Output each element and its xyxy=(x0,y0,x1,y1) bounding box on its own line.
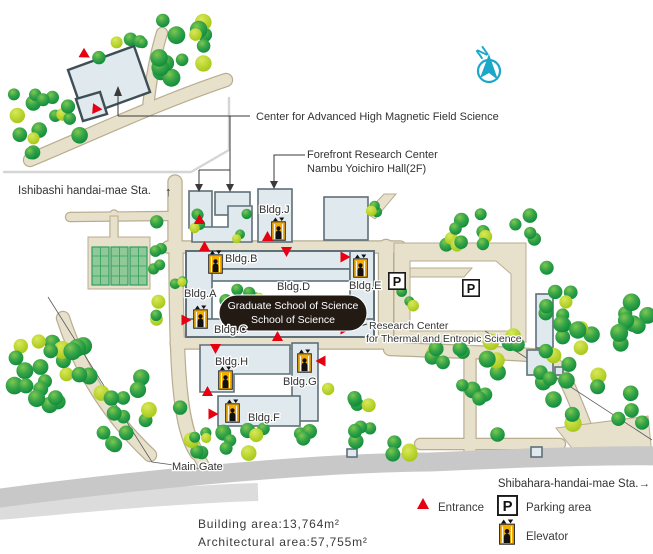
research-center-label-line1: Research Center xyxy=(369,320,449,332)
tree xyxy=(543,372,557,386)
tree xyxy=(610,324,628,342)
area-stats: Building area:13,764m² Architectural are… xyxy=(198,517,368,549)
tree xyxy=(479,351,496,368)
tree xyxy=(154,259,165,270)
tree xyxy=(545,391,562,408)
school-badge-line2: School of Science xyxy=(251,314,335,326)
architectural-area-stat: Architectural area:57,755m² xyxy=(198,535,368,549)
tree xyxy=(475,208,487,220)
tree xyxy=(92,51,105,64)
tree xyxy=(558,372,574,388)
tree xyxy=(553,316,569,332)
tree xyxy=(348,424,362,438)
tree xyxy=(72,367,88,383)
tree xyxy=(173,400,187,414)
tree xyxy=(189,28,202,41)
tree xyxy=(623,386,639,402)
tree xyxy=(27,132,39,144)
tree xyxy=(107,437,122,452)
tree xyxy=(454,235,468,249)
tree xyxy=(104,390,119,405)
legend: Entrance Parking area Elevator xyxy=(417,496,592,544)
tree xyxy=(28,390,45,407)
tree xyxy=(177,277,186,286)
tree xyxy=(201,433,211,443)
tree xyxy=(540,261,554,275)
tree xyxy=(197,39,211,53)
building-north-5 xyxy=(324,197,368,240)
shibahara-station-label: Shibahara-handai-mae Sta.→ xyxy=(498,478,650,490)
tree xyxy=(9,351,24,366)
tree xyxy=(111,36,123,48)
entrance-icon xyxy=(78,48,92,63)
tree xyxy=(490,427,505,442)
campus-map: P xyxy=(0,0,653,554)
tree xyxy=(130,382,146,398)
tree xyxy=(10,108,25,123)
tree xyxy=(60,367,74,381)
tree xyxy=(220,442,233,455)
tree xyxy=(150,49,168,67)
parking-icon xyxy=(389,273,405,289)
tree xyxy=(195,55,211,71)
tree xyxy=(151,295,165,309)
tennis-courts xyxy=(88,216,150,289)
forefront-label-line1: Forefront Research Center xyxy=(307,149,438,161)
tree xyxy=(151,310,162,321)
tree xyxy=(407,300,419,312)
forefront-label-line2: Nambu Yoichiro Hall(2F) xyxy=(307,163,426,175)
school-badge-line1: Graduate School of Science xyxy=(228,300,359,312)
tree xyxy=(63,342,81,360)
tree xyxy=(8,88,20,100)
tree xyxy=(385,447,400,462)
tree xyxy=(574,340,589,355)
tree xyxy=(16,362,33,379)
tree xyxy=(436,356,450,370)
tree xyxy=(561,357,576,372)
bldg-e-label: Bldg.E xyxy=(349,280,381,292)
tree xyxy=(296,431,310,445)
tree xyxy=(232,234,241,243)
entrance-icon xyxy=(209,409,219,420)
bldg-h-label: Bldg.H xyxy=(215,356,248,368)
bldg-a-label: Bldg.A xyxy=(184,288,217,300)
bldg-b-label: Bldg.B xyxy=(225,253,257,265)
tree xyxy=(150,245,162,257)
tree xyxy=(548,285,562,299)
tree xyxy=(97,426,111,440)
tree xyxy=(48,390,63,405)
tree xyxy=(635,416,649,430)
tree xyxy=(141,402,157,418)
parking-icon xyxy=(463,280,479,296)
tree xyxy=(366,206,377,217)
ishibashi-station-label: Ishibashi handai-mae Sta. xyxy=(18,185,151,197)
parking-legend-label: Parking area xyxy=(526,502,592,514)
entrance-legend-label: Entrance xyxy=(438,502,484,514)
tree xyxy=(189,432,200,443)
bldg-j-label: Bldg.J xyxy=(259,204,290,216)
tree xyxy=(242,209,252,219)
tree xyxy=(168,26,186,44)
elevator-legend-icon xyxy=(500,520,515,545)
tree xyxy=(231,284,243,296)
tree xyxy=(559,295,572,308)
parking-lane xyxy=(410,268,472,277)
tree xyxy=(322,383,334,395)
tree xyxy=(523,208,538,223)
entrance-legend-icon xyxy=(417,498,429,509)
tree xyxy=(623,294,641,312)
tree xyxy=(33,359,49,375)
bldg-g-label: Bldg.G xyxy=(283,376,317,388)
building-bldg-h xyxy=(200,345,290,392)
tree xyxy=(472,391,486,405)
tree xyxy=(119,426,134,441)
tree xyxy=(61,99,75,113)
tree xyxy=(176,54,189,67)
main-gate-label: Main Gate xyxy=(172,461,223,473)
ishibashi-direction-arrow: ↑ xyxy=(165,184,172,199)
building-bldg-d xyxy=(212,269,350,281)
tree xyxy=(12,127,27,142)
tree xyxy=(189,223,199,233)
tree xyxy=(590,379,605,394)
bldg-c-label: Bldg.C xyxy=(214,324,247,336)
bldg-f-label: Bldg.F xyxy=(248,412,280,424)
tree xyxy=(107,406,122,421)
tree xyxy=(63,112,76,125)
tree xyxy=(611,412,625,426)
tree xyxy=(524,227,536,239)
tree xyxy=(362,398,376,412)
gate-structure xyxy=(531,447,542,457)
magnetic-center-label: Center for Advanced High Magnetic Field … xyxy=(256,111,499,123)
tree xyxy=(539,344,553,358)
tree xyxy=(249,428,263,442)
tree xyxy=(509,218,521,230)
tree xyxy=(456,379,468,391)
tree xyxy=(477,238,489,250)
tree xyxy=(43,344,58,359)
tree xyxy=(624,403,639,418)
tree xyxy=(18,378,33,393)
tree xyxy=(25,147,38,160)
gate-structure xyxy=(347,449,357,457)
tree xyxy=(402,446,418,462)
tree xyxy=(150,215,163,228)
research-center-label-line2: for Thermal and Entropic Science xyxy=(366,333,522,345)
tree xyxy=(569,321,586,338)
parking-legend-icon xyxy=(498,496,517,515)
tree xyxy=(347,391,361,405)
tree xyxy=(137,38,148,49)
campus-map-svg: P xyxy=(0,0,653,554)
elevator-legend-label: Elevator xyxy=(526,531,568,543)
tree xyxy=(241,445,257,461)
tree xyxy=(71,127,88,144)
building-area-stat: Building area:13,764m² xyxy=(198,517,340,531)
tree xyxy=(449,222,462,235)
tree xyxy=(565,407,580,422)
tree xyxy=(539,299,553,313)
tree xyxy=(37,93,50,106)
compass: N xyxy=(473,43,500,82)
bldg-d-label: Bldg.D xyxy=(277,281,310,293)
tree xyxy=(32,334,46,348)
tree xyxy=(156,14,170,28)
